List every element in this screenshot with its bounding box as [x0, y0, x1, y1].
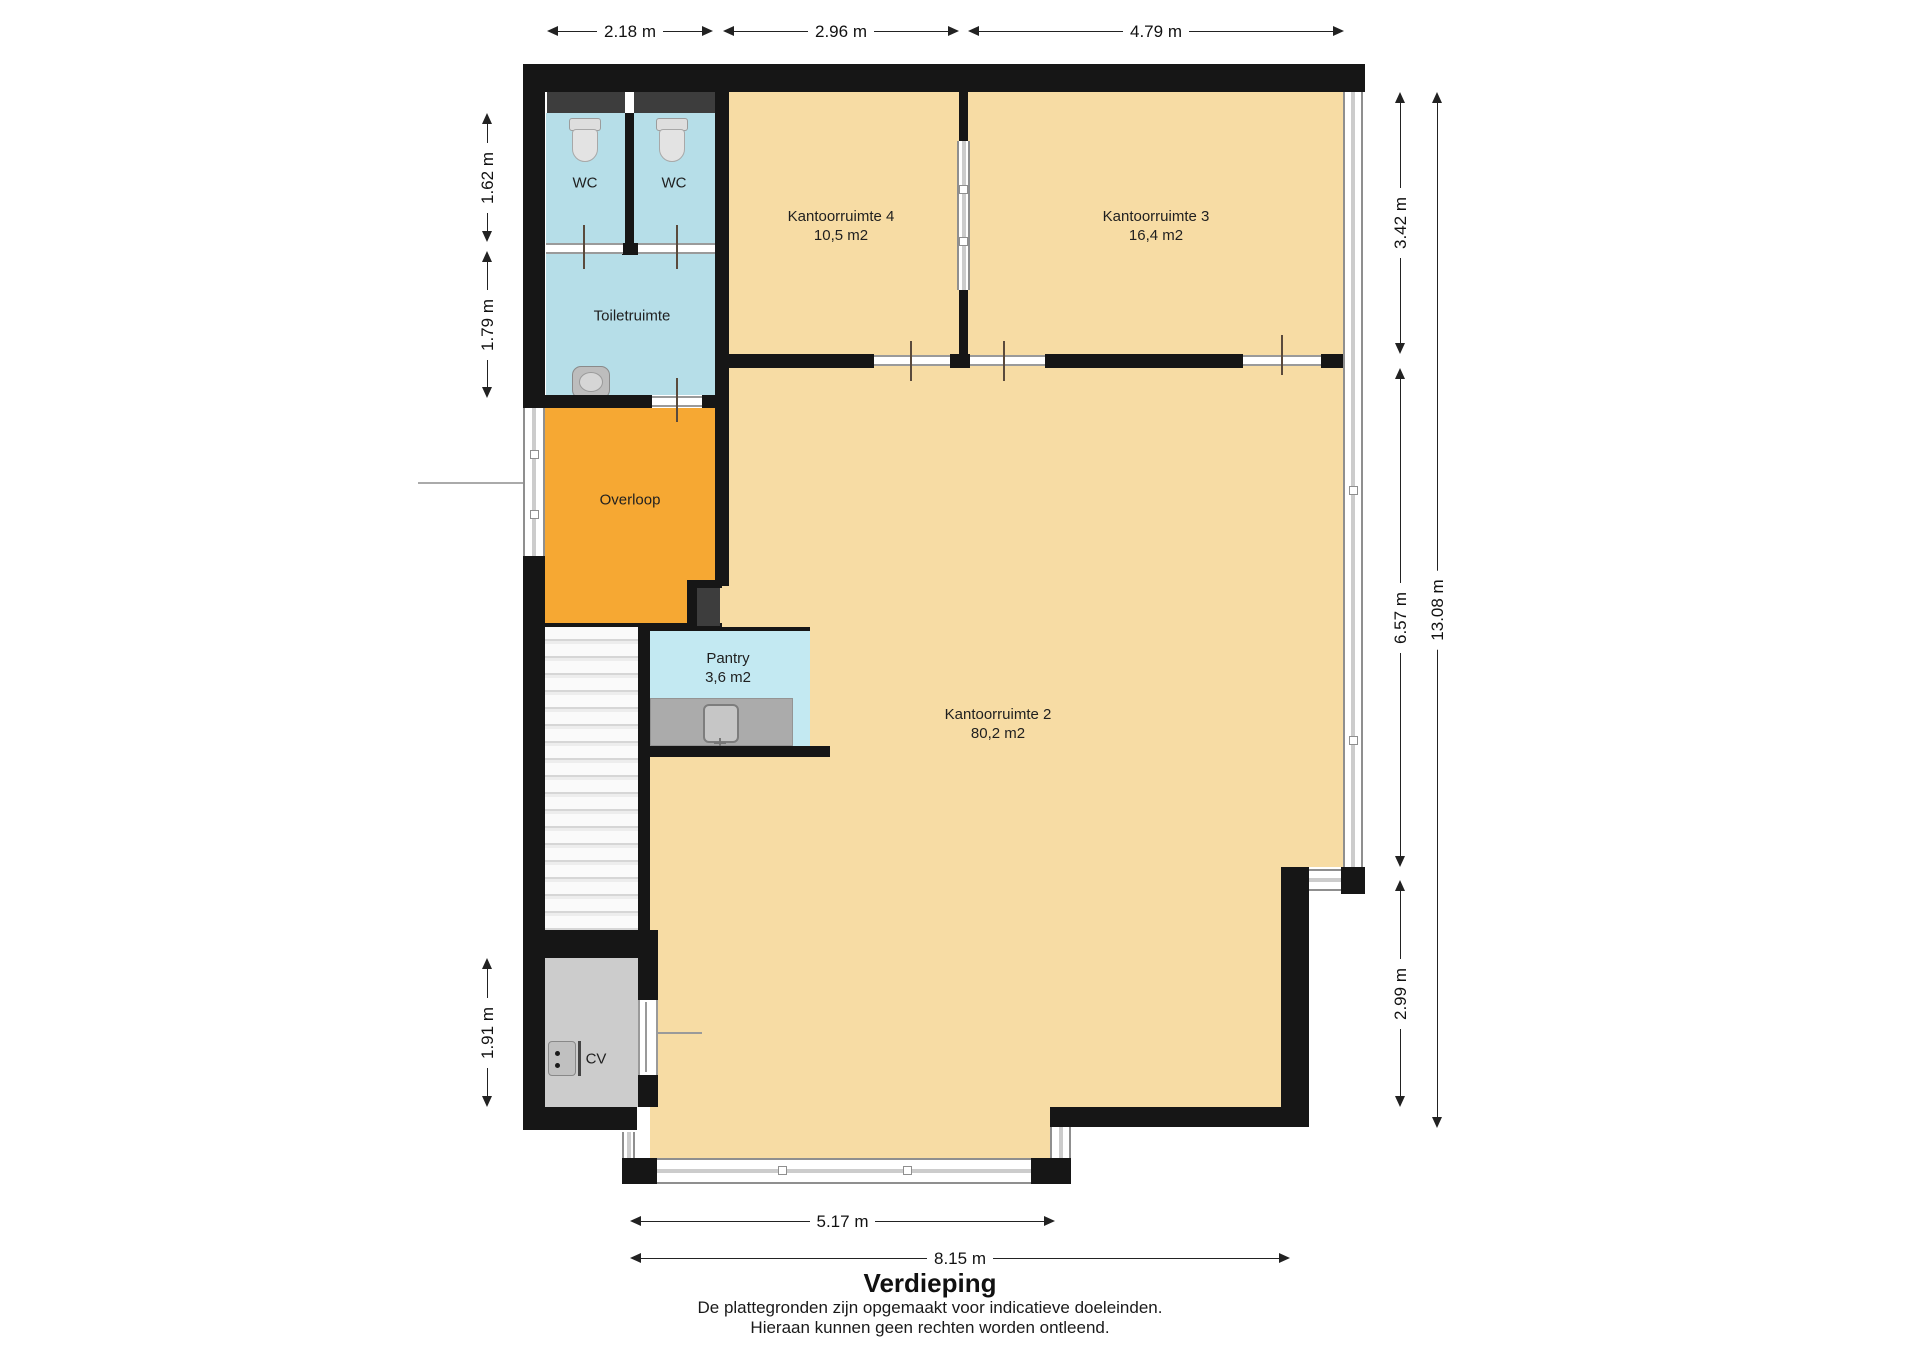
wall-toiletruimte-bottom-left	[523, 395, 652, 408]
wall-bottom-right	[1050, 1107, 1309, 1127]
wall-stairs-cv	[545, 930, 658, 958]
door-opening-kantoorruimte3-left	[970, 355, 1045, 366]
dimension-right-2: 6.57 m	[1393, 368, 1407, 867]
window-mullion	[1349, 736, 1358, 745]
window-mullion	[959, 237, 968, 246]
wall-wc-divider	[625, 113, 634, 243]
wall-cv-right-lower	[638, 1075, 658, 1107]
window-mullion	[530, 450, 539, 459]
disclaimer-line-1: De plattegronden zijn opgemaakt voor ind…	[330, 1298, 1530, 1318]
wall-overloop-door-jamb	[687, 580, 697, 626]
window-connector-right	[1050, 1127, 1071, 1158]
wall-right-lower-vertical	[1281, 867, 1309, 1127]
room-label-overloop: Overloop	[600, 491, 661, 510]
wall-cv-right-upper	[638, 958, 658, 1000]
faucet-icon	[714, 742, 726, 744]
washbasin-inner	[579, 372, 603, 392]
dimension-left-1: 1.62 m	[480, 113, 494, 242]
toilet-bowl	[572, 129, 598, 162]
room-label-wc-right: WC	[662, 174, 687, 193]
window-bottom-facade	[657, 1158, 1031, 1184]
disclaimer-line-2: Hieraan kunnen geen rechten worden ontle…	[330, 1318, 1530, 1338]
title-block: Verdieping De plattegronden zijn opgemaa…	[330, 1268, 1530, 1338]
window-overloop-left	[523, 408, 545, 556]
dimension-bottom-2: 8.15 m	[630, 1251, 1290, 1265]
wall-stairs-right	[638, 627, 650, 958]
room-cv	[545, 958, 638, 1107]
dimension-bottom-1: 5.17 m	[630, 1214, 1055, 1228]
wall-left-lower	[523, 556, 545, 1130]
duct-block-wc-right	[634, 92, 715, 113]
door-tick	[1003, 341, 1005, 381]
wall-divider-k4k3-bottom	[959, 290, 968, 368]
dimension-top-3: 4.79 m	[968, 24, 1344, 38]
door-leaf-cv	[645, 1002, 647, 1072]
door-tick	[676, 225, 678, 269]
duct-block-wc-left	[547, 92, 625, 113]
boiler-dot	[555, 1063, 560, 1068]
wall-offices-bottom-1	[729, 354, 874, 368]
room-label-cv: CV	[586, 1050, 607, 1069]
wall-stairs-top-line	[545, 623, 640, 627]
wall-corner-bottom-right	[1031, 1158, 1071, 1184]
wall-toiletruimte-bottom-right	[702, 395, 715, 408]
toilet-bowl	[659, 129, 685, 162]
wall-cv-bottom	[523, 1107, 637, 1130]
window-divider-k4k3	[957, 141, 970, 290]
dimension-top-1: 2.18 m	[547, 24, 713, 38]
wall-offices-bottom-3	[1045, 354, 1243, 368]
wall-pantry-bottom	[638, 746, 830, 757]
floor-plan: WC WC Toiletruimte Overloop Pantry3,6 m2…	[0, 0, 1920, 1358]
door-tick	[1281, 335, 1283, 375]
dimension-left-2: 1.79 m	[480, 251, 494, 398]
door-tick	[583, 225, 585, 269]
wall-divider-k4k3-top	[959, 85, 968, 141]
wall-top	[523, 64, 1365, 92]
wall-pantry-top-thin	[722, 627, 810, 631]
window-mullion	[778, 1166, 787, 1175]
boiler-icon	[548, 1041, 576, 1076]
wall-corner-bottom-left	[622, 1158, 657, 1184]
door-tick	[676, 378, 678, 422]
page-title: Verdieping	[330, 1268, 1530, 1298]
window-mullion	[959, 185, 968, 194]
kitchen-sink-icon	[703, 704, 739, 743]
window-notch	[1309, 869, 1341, 891]
door-tick	[910, 341, 912, 381]
boiler-dot	[555, 1051, 560, 1056]
door-swing-cv	[658, 1032, 702, 1034]
wall-notch-corner	[1341, 867, 1365, 894]
dimension-top-2: 2.96 m	[723, 24, 959, 38]
room-label-kantoorruimte-3: Kantoorruimte 316,4 m2	[1103, 207, 1210, 245]
door-opening-cv	[638, 1000, 658, 1075]
dimension-left-3: 1.91 m	[480, 958, 494, 1107]
window-mullion	[530, 510, 539, 519]
door-panel-overloop	[697, 588, 720, 626]
room-label-pantry: Pantry3,6 m2	[705, 649, 751, 687]
dimension-right-total: 13.08 m	[1430, 92, 1444, 1128]
room-label-kantoorruimte-4: Kantoorruimte 410,5 m2	[788, 207, 895, 245]
wall-left-upper	[523, 64, 545, 408]
boiler-divider	[578, 1041, 581, 1076]
door-opening-kantoorruimte4	[874, 355, 950, 366]
dimension-right-3: 2.99 m	[1393, 880, 1407, 1107]
wall-interior-vertical	[715, 92, 729, 586]
window-leader-line	[418, 482, 523, 484]
window-right-facade	[1343, 92, 1363, 867]
wall-wc-divider-stub	[622, 243, 638, 255]
window-connector-left	[622, 1132, 635, 1158]
room-label-kantoorruimte-2: Kantoorruimte 280,2 m2	[945, 705, 1052, 743]
wall-offices-bottom-4	[1321, 354, 1344, 368]
room-label-wc-left: WC	[573, 174, 598, 193]
window-mullion	[1349, 486, 1358, 495]
room-label-toiletruimte: Toiletruimte	[594, 307, 671, 326]
dimension-right-1: 3.42 m	[1393, 92, 1407, 354]
window-mullion	[903, 1166, 912, 1175]
staircase	[545, 627, 638, 930]
